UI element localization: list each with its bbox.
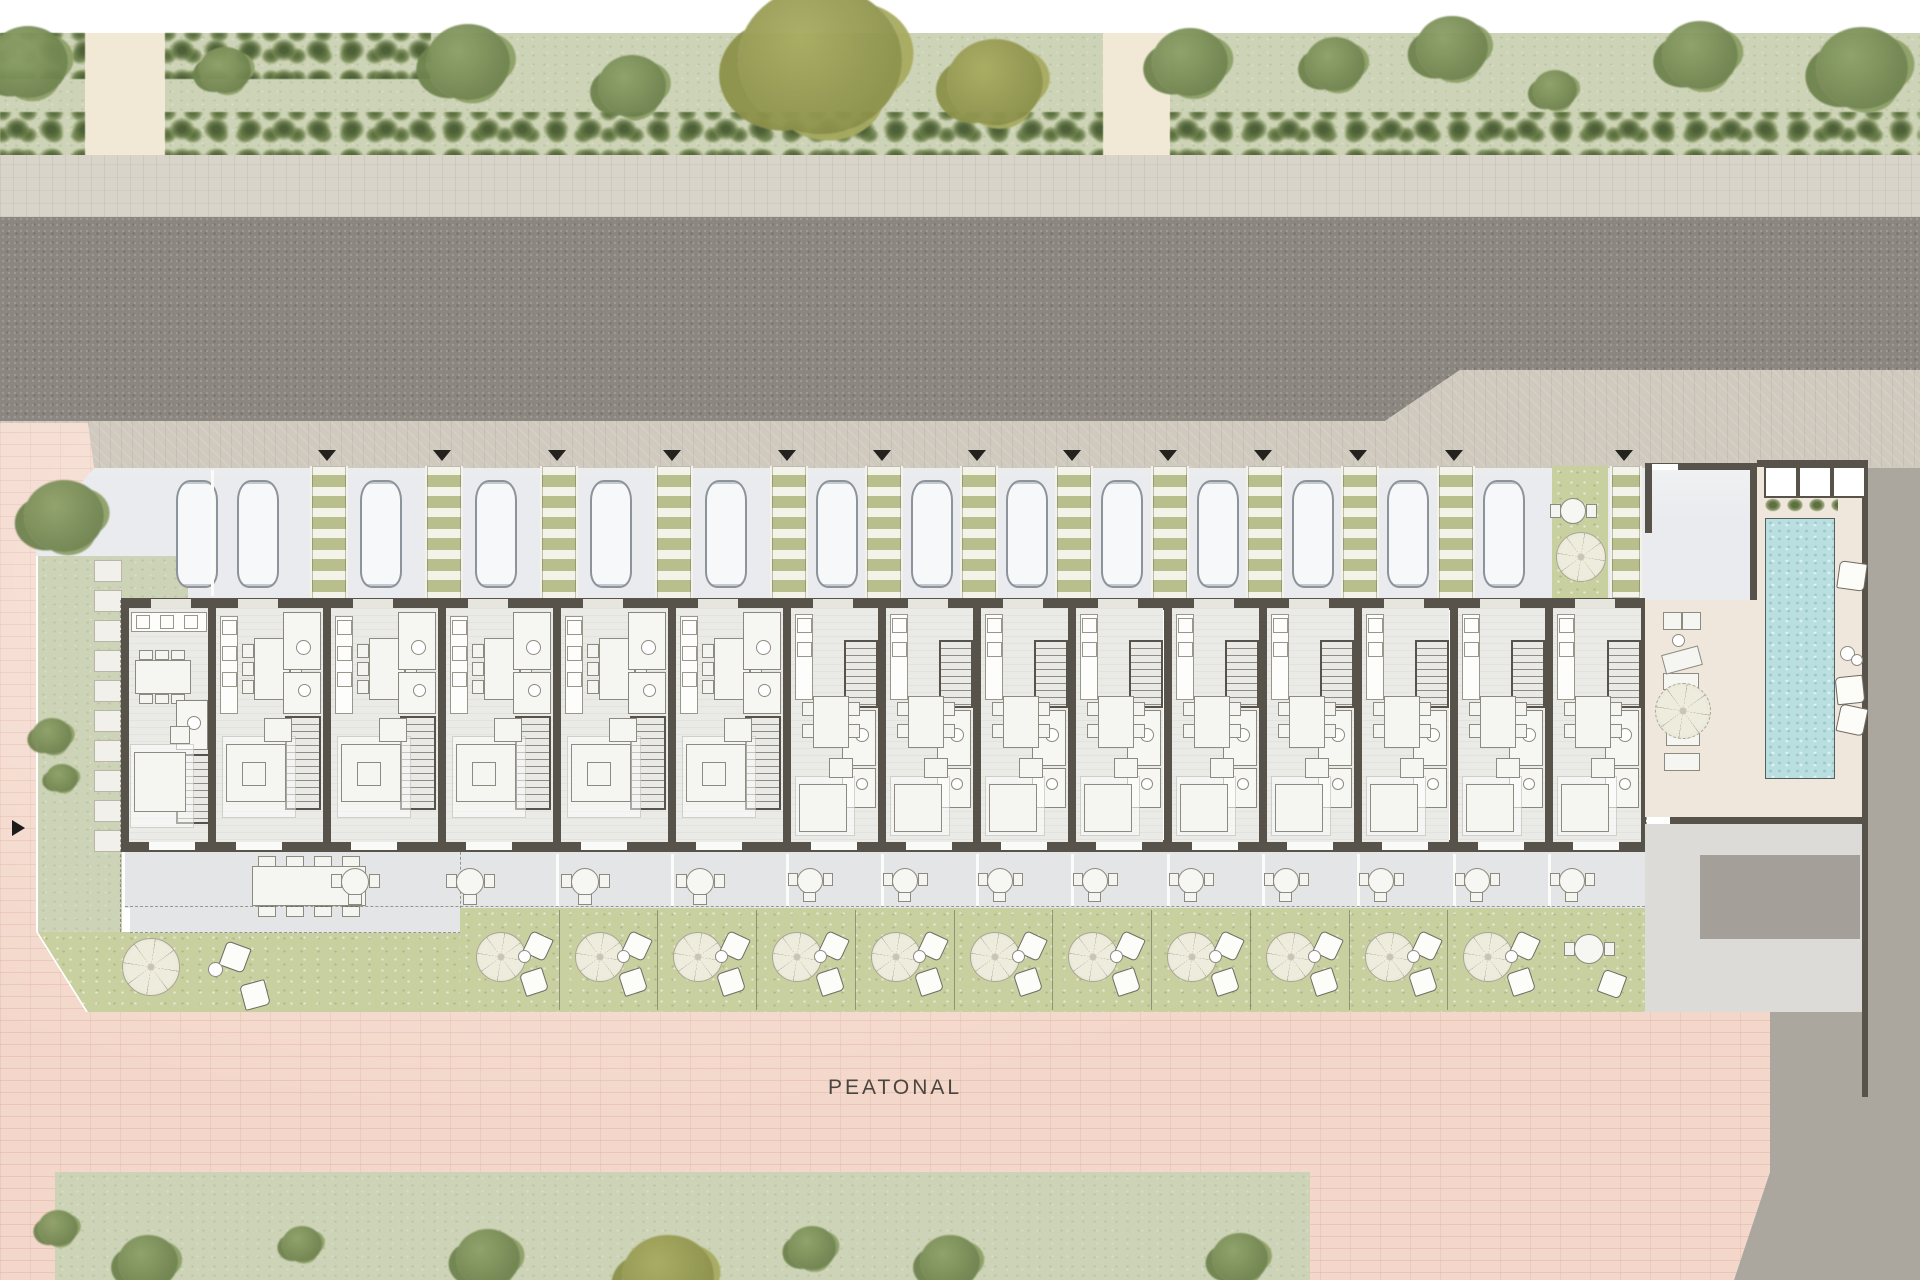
party-wall <box>878 598 886 852</box>
chair <box>472 662 484 676</box>
chair <box>1490 873 1500 886</box>
sofa <box>1370 784 1418 832</box>
sky-strip <box>0 0 1920 33</box>
sidewalk-north <box>0 155 1920 217</box>
toilet <box>526 640 541 655</box>
garage-door <box>583 599 623 608</box>
chair <box>242 680 254 694</box>
tree <box>1416 16 1488 81</box>
sofa <box>1084 784 1132 832</box>
dining-table <box>1003 696 1039 748</box>
appliance <box>682 646 697 661</box>
parked-car <box>475 480 517 588</box>
sun-lounger <box>1663 612 1682 630</box>
toilet <box>1332 778 1344 790</box>
tree <box>1212 1233 1268 1280</box>
chair <box>1374 892 1387 902</box>
chair <box>155 694 169 704</box>
garden-path <box>85 33 165 160</box>
parasol-icon <box>1556 532 1606 582</box>
chair <box>1038 724 1050 738</box>
chair <box>484 874 495 888</box>
appliance <box>160 615 174 629</box>
appliance <box>1178 642 1193 657</box>
round-table <box>987 868 1013 894</box>
garage-door <box>151 599 191 608</box>
terrace-divider <box>556 854 559 906</box>
side-table <box>1851 654 1863 666</box>
parked-car <box>1006 480 1048 588</box>
toilet <box>1523 778 1535 790</box>
chair <box>1279 892 1292 902</box>
staircase <box>1415 640 1449 708</box>
armchair <box>1591 758 1615 778</box>
entrance-arrow-icon <box>12 820 25 836</box>
tree <box>1662 21 1738 89</box>
chair <box>1087 724 1099 738</box>
appliance <box>1368 618 1383 633</box>
appliance <box>567 672 582 687</box>
terrace-window <box>1573 842 1619 850</box>
garage-door <box>1575 599 1615 608</box>
armchair <box>379 718 407 742</box>
chair <box>897 702 909 716</box>
garden-dashed-line <box>125 906 1645 907</box>
appliance <box>1559 618 1574 633</box>
pool-zone-wall <box>1862 463 1868 1097</box>
carport-wall <box>1645 463 1652 533</box>
skylight <box>1798 466 1832 498</box>
parasol-icon <box>122 938 180 996</box>
sofa <box>1466 784 1514 832</box>
coffee-table <box>587 762 611 786</box>
chair <box>1073 873 1083 886</box>
pool-pillow <box>1836 560 1868 592</box>
terrace-window <box>466 842 512 850</box>
armchair <box>609 718 637 742</box>
chair <box>897 724 909 738</box>
toilet <box>756 640 771 655</box>
chair <box>1610 724 1622 738</box>
chair <box>1229 702 1241 716</box>
side-table <box>1672 634 1685 647</box>
coffee-table <box>357 762 381 786</box>
entry-walkway <box>425 466 463 600</box>
chair <box>918 873 928 886</box>
dining-table <box>1098 696 1134 748</box>
chair <box>702 680 714 694</box>
chair <box>342 906 360 917</box>
chair <box>1564 724 1576 738</box>
armchair <box>1400 758 1424 778</box>
chair <box>1359 873 1369 886</box>
round-table <box>1574 934 1604 964</box>
appliance <box>1273 642 1288 657</box>
chair <box>1515 724 1527 738</box>
appliance <box>222 672 237 687</box>
toilet <box>298 684 311 697</box>
terrace-window <box>1001 842 1047 850</box>
armchair <box>1114 758 1138 778</box>
garage-door <box>1003 599 1043 608</box>
chair <box>978 873 988 886</box>
chair <box>1565 892 1578 902</box>
carport-gate <box>1652 464 1678 470</box>
staircase <box>1225 640 1259 708</box>
chair <box>802 724 814 738</box>
dining-table <box>908 696 944 748</box>
chair <box>1469 724 1481 738</box>
round-table <box>456 868 484 896</box>
round-table <box>1273 868 1299 894</box>
terrace-window <box>1096 842 1142 850</box>
parked-car <box>360 480 402 588</box>
chair <box>587 662 599 676</box>
chair <box>1184 892 1197 902</box>
tree <box>1152 28 1228 96</box>
sun-lounger <box>1664 753 1700 771</box>
stepping-stone <box>94 620 122 642</box>
garage-door <box>353 599 393 608</box>
chair <box>472 644 484 658</box>
chair <box>139 694 153 704</box>
garage-door <box>1384 599 1424 608</box>
chair <box>1087 702 1099 716</box>
chair <box>578 894 592 905</box>
stepping-stone <box>94 740 122 762</box>
terrace-window <box>1382 842 1428 850</box>
chair <box>463 894 477 905</box>
dining-table <box>1289 696 1325 748</box>
party-wall <box>1259 598 1267 852</box>
chair <box>1278 702 1290 716</box>
appliance <box>337 620 352 635</box>
staircase <box>939 640 973 708</box>
entry-walkway <box>865 466 903 600</box>
chair <box>992 724 1004 738</box>
chair <box>943 702 955 716</box>
toilet <box>641 640 656 655</box>
chair <box>314 856 332 867</box>
tree <box>118 1235 178 1280</box>
chair <box>1204 873 1214 886</box>
appliance <box>892 618 907 633</box>
stepping-stone <box>94 800 122 822</box>
chair <box>848 724 860 738</box>
garden-divider <box>1151 910 1152 1010</box>
house-wall <box>121 598 129 852</box>
tree <box>947 39 1043 125</box>
tree <box>598 55 666 116</box>
appliance <box>222 620 237 635</box>
entrance-marker-icon <box>1349 450 1367 461</box>
sofa <box>1561 784 1609 832</box>
garden-divider <box>1250 910 1251 1010</box>
chair <box>898 892 911 902</box>
chair <box>788 873 798 886</box>
appliance <box>1178 618 1193 633</box>
chair <box>1419 702 1431 716</box>
chair <box>1299 873 1309 886</box>
chair <box>943 724 955 738</box>
round-table <box>1560 498 1586 524</box>
entry-walkway <box>1437 466 1475 600</box>
chair <box>286 856 304 867</box>
skylight <box>1764 466 1798 498</box>
armchair <box>1305 758 1329 778</box>
appliance <box>1368 642 1383 657</box>
side-table <box>1407 950 1420 963</box>
party-wall <box>668 598 676 852</box>
parked-car <box>911 480 953 588</box>
entrance-marker-icon <box>433 450 451 461</box>
chair <box>883 873 893 886</box>
chair <box>1604 942 1615 956</box>
staircase <box>844 640 878 708</box>
chair <box>1088 892 1101 902</box>
sun-lounger <box>1682 612 1701 630</box>
tree <box>1305 37 1365 91</box>
chair <box>1183 724 1195 738</box>
staircase <box>1607 640 1641 708</box>
side-table <box>518 950 531 963</box>
entrance-marker-icon <box>1159 450 1177 461</box>
parked-car <box>1197 480 1239 588</box>
peatonal-label: PEATONAL <box>828 1076 962 1100</box>
chair <box>1108 873 1118 886</box>
chair <box>1550 873 1560 886</box>
pool-pillow <box>1835 703 1868 736</box>
terrace-window <box>696 842 742 850</box>
appliance <box>184 615 198 629</box>
party-wall <box>438 598 446 852</box>
coffee-table <box>472 762 496 786</box>
tree <box>1816 27 1908 110</box>
side-table <box>913 950 926 963</box>
terrace-window <box>149 842 195 850</box>
chair <box>1133 702 1145 716</box>
terrace-window <box>236 842 282 850</box>
chair <box>1585 873 1595 886</box>
appliance <box>682 672 697 687</box>
stepping-stone <box>94 770 122 792</box>
chair <box>342 856 360 867</box>
chair <box>848 702 860 716</box>
chair <box>139 650 153 660</box>
chair <box>1455 873 1465 886</box>
entrance-marker-icon <box>1615 450 1633 461</box>
chair <box>803 892 816 902</box>
appliance <box>452 620 467 635</box>
entry-walkway <box>770 466 808 600</box>
staircase <box>1034 640 1068 708</box>
party-wall <box>1354 598 1362 852</box>
entry-walkway <box>1151 466 1189 600</box>
appliance <box>337 646 352 661</box>
round-table <box>892 868 918 894</box>
tree <box>38 1210 78 1246</box>
side-table <box>1505 950 1518 963</box>
side-table <box>1308 950 1321 963</box>
terrace-window <box>811 842 857 850</box>
coffee-table <box>702 762 726 786</box>
chair <box>1278 724 1290 738</box>
entry-walkway <box>1341 466 1379 600</box>
chair <box>1419 724 1431 738</box>
toilet <box>411 640 426 655</box>
chair <box>1564 942 1575 956</box>
chair <box>587 680 599 694</box>
carport-wall <box>1750 463 1757 600</box>
round-table <box>1178 868 1204 894</box>
appliance <box>1559 642 1574 657</box>
garden-divider <box>756 910 757 1010</box>
party-wall <box>1545 598 1553 852</box>
tree <box>1533 70 1577 110</box>
side-table <box>1012 950 1025 963</box>
party-wall <box>1164 598 1172 852</box>
armchair <box>924 758 948 778</box>
stepping-stone <box>94 830 122 852</box>
parked-car <box>1483 480 1525 588</box>
round-table <box>1559 868 1585 894</box>
chair <box>1469 702 1481 716</box>
party-wall <box>323 598 331 852</box>
garden-divider <box>1447 910 1448 1010</box>
entry-walkway <box>1610 466 1642 598</box>
toilet <box>643 684 656 697</box>
chair <box>1373 724 1385 738</box>
stepping-stone <box>94 590 122 612</box>
toilet <box>1046 778 1058 790</box>
chair <box>1013 873 1023 886</box>
dining-table <box>1575 696 1611 748</box>
hedge-row <box>165 112 1103 160</box>
side-table <box>1110 950 1123 963</box>
armchair <box>1210 758 1234 778</box>
chair <box>992 702 1004 716</box>
entrance-marker-icon <box>968 450 986 461</box>
sofa <box>1180 784 1228 832</box>
chair <box>1324 702 1336 716</box>
pool-zone-wall <box>1670 817 1868 824</box>
appliance <box>567 620 582 635</box>
appliance <box>797 642 812 657</box>
appliance <box>222 646 237 661</box>
side-table <box>1209 950 1222 963</box>
entrance-marker-icon <box>778 450 796 461</box>
chair <box>357 680 369 694</box>
chair <box>242 662 254 676</box>
chair <box>1169 873 1179 886</box>
garden-divider <box>657 910 658 1010</box>
dining-table <box>1384 696 1420 748</box>
site-plan-canvas: PEATONAL <box>0 0 1920 1280</box>
tree <box>199 47 251 94</box>
toilet <box>758 684 771 697</box>
chair <box>714 874 725 888</box>
toilet <box>951 778 963 790</box>
chair <box>1373 702 1385 716</box>
chair <box>1038 702 1050 716</box>
round-table <box>686 868 714 896</box>
toilet <box>528 684 541 697</box>
garage-door <box>1194 599 1234 608</box>
toilet <box>1427 778 1439 790</box>
dining-table <box>1480 696 1516 748</box>
side-table <box>208 962 223 977</box>
carport <box>1645 463 1757 600</box>
entry-walkway <box>960 466 998 600</box>
offsite-paving <box>1770 1012 1920 1280</box>
party-wall <box>553 598 561 852</box>
stepping-stone <box>94 560 122 582</box>
toilet <box>1141 778 1153 790</box>
toilet <box>856 778 868 790</box>
appliance <box>452 646 467 661</box>
side-table <box>715 950 728 963</box>
tree <box>46 764 78 793</box>
entrance-marker-icon <box>1445 450 1463 461</box>
chair <box>1550 504 1561 518</box>
terrace-window <box>906 842 952 850</box>
toilet <box>1619 778 1631 790</box>
entrance-marker-icon <box>873 450 891 461</box>
parasol-icon <box>1655 683 1711 739</box>
garage-door <box>1289 599 1329 608</box>
entry-walkway <box>655 466 693 600</box>
appliance <box>136 615 150 629</box>
stepping-stone <box>94 680 122 702</box>
hedge-row <box>0 112 85 160</box>
stepping-stone <box>94 650 122 672</box>
chair <box>1183 702 1195 716</box>
chair <box>1586 504 1597 518</box>
tree <box>426 24 510 100</box>
chair <box>587 644 599 658</box>
service-ramp <box>1700 855 1860 939</box>
staircase <box>1320 640 1354 708</box>
chair <box>446 874 457 888</box>
chair <box>1133 724 1145 738</box>
chair <box>1515 702 1527 716</box>
entrance-marker-icon <box>548 450 566 461</box>
parked-car <box>1387 480 1429 588</box>
sofa <box>894 784 942 832</box>
chair <box>802 702 814 716</box>
chair <box>314 906 332 917</box>
tree <box>32 718 72 754</box>
chair <box>331 874 342 888</box>
chair <box>1564 702 1576 716</box>
garden-divider <box>559 910 560 1010</box>
terrace-window <box>1478 842 1524 850</box>
skylight <box>1832 466 1866 498</box>
garden-divider <box>1052 910 1053 1010</box>
stepping-stone <box>94 710 122 732</box>
round-table <box>797 868 823 894</box>
chair <box>348 894 362 905</box>
round-table <box>1368 868 1394 894</box>
round-table <box>571 868 599 896</box>
parked-car <box>816 480 858 588</box>
chair <box>155 650 169 660</box>
tree <box>788 1226 836 1269</box>
appliance <box>1082 618 1097 633</box>
chair <box>676 874 687 888</box>
party-wall <box>1450 598 1458 852</box>
sofa <box>134 752 186 812</box>
